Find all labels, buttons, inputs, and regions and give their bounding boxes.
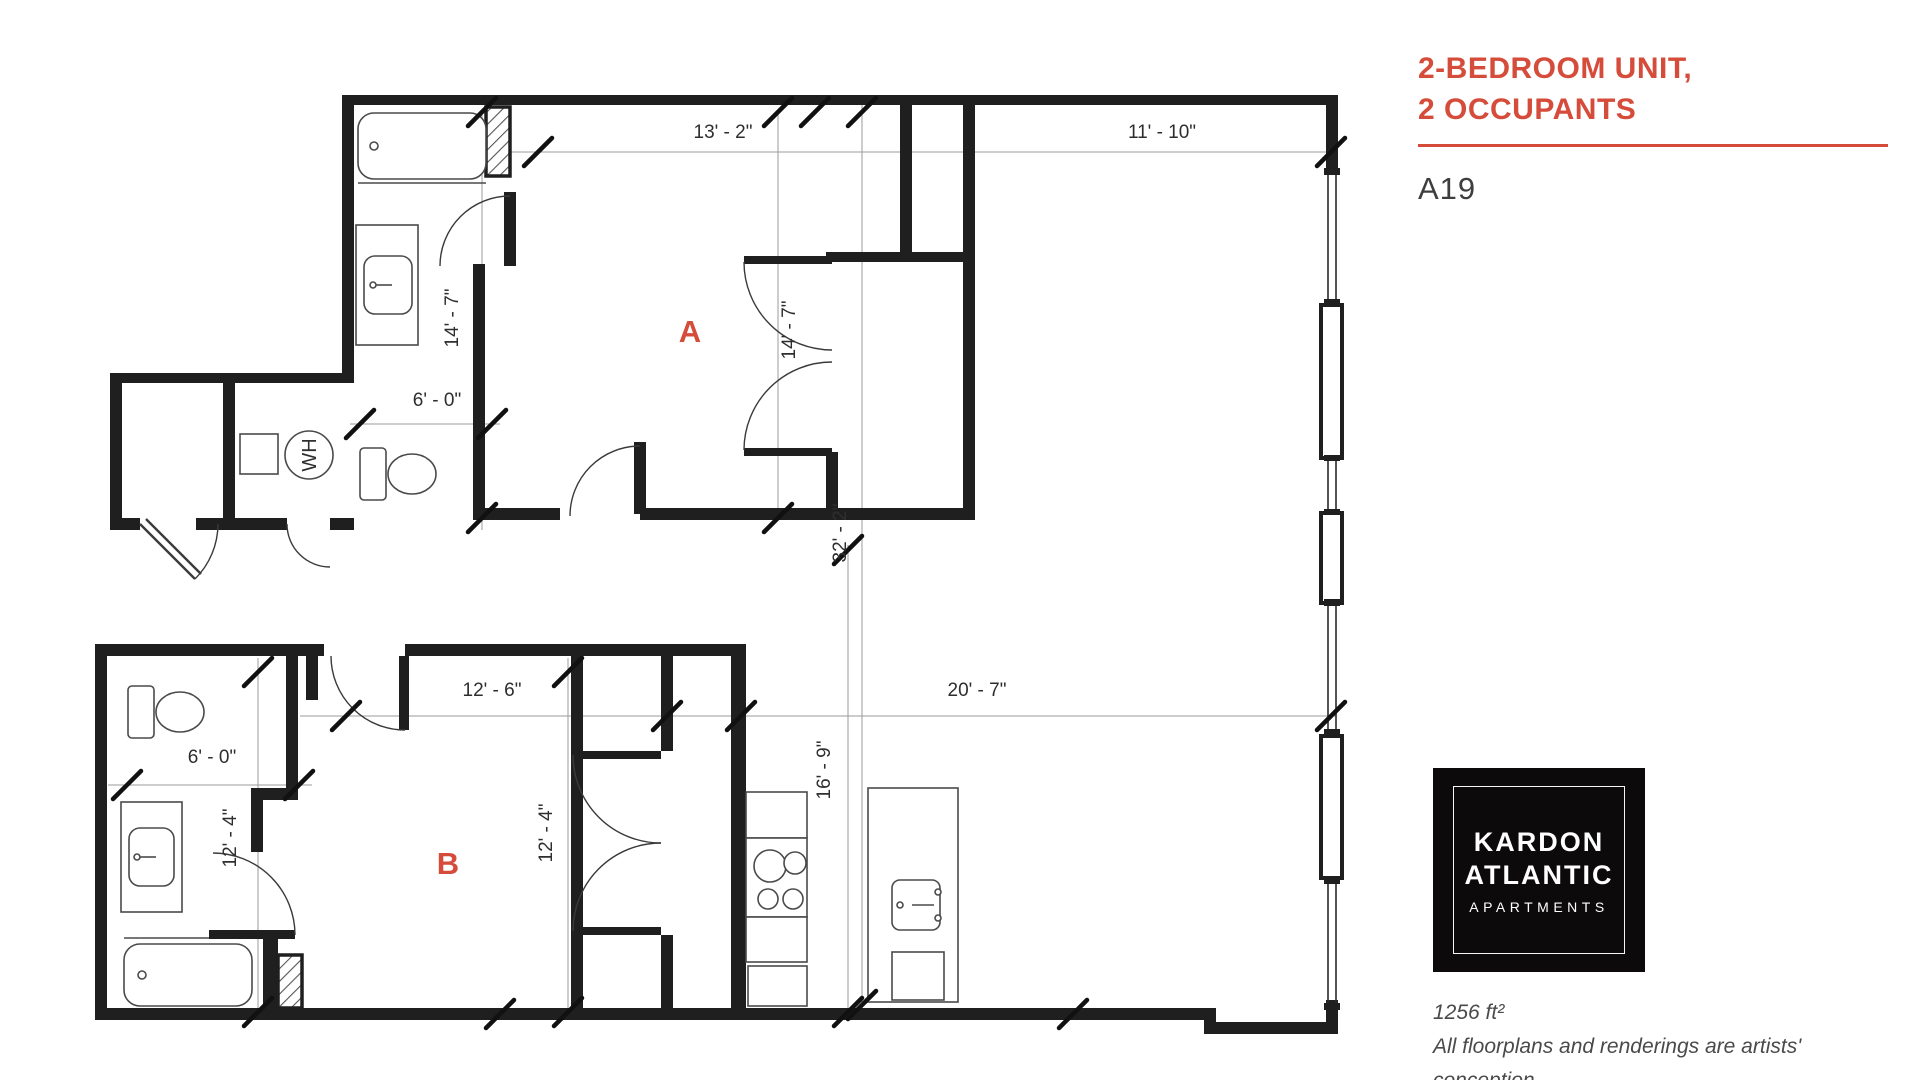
dim-bedroom-b-height: 12' - 4" bbox=[536, 804, 557, 863]
wall-b-block-top-2 bbox=[405, 644, 746, 656]
bath-a-door bbox=[440, 192, 516, 266]
utility-box bbox=[240, 434, 278, 474]
vanity-sink-b bbox=[121, 802, 182, 912]
room-label-a: A bbox=[679, 314, 701, 349]
wall-bath-a-right bbox=[473, 264, 485, 520]
dishwasher bbox=[892, 952, 944, 1000]
bathtub-a bbox=[358, 113, 486, 183]
plumbing-wall-b bbox=[278, 955, 302, 1008]
plumbing-wall-a bbox=[486, 107, 510, 176]
vanity-sink-a bbox=[356, 225, 418, 345]
unit-code: A19 bbox=[1418, 171, 1888, 207]
water-heater-label: WH bbox=[299, 438, 321, 471]
toilet-b bbox=[128, 686, 204, 738]
wall-bottom-jog bbox=[1204, 1008, 1216, 1034]
dim-bedroom-a-height: 14' - 7" bbox=[779, 301, 800, 360]
bathtub-b bbox=[124, 938, 263, 1006]
mullion bbox=[1321, 513, 1342, 603]
walls bbox=[95, 95, 1338, 1034]
doors bbox=[140, 192, 832, 939]
oven bbox=[748, 966, 807, 1006]
wall-entry-bottom-3 bbox=[330, 518, 354, 530]
wall-bath-b-right-upper bbox=[286, 656, 298, 790]
wall-living-west bbox=[963, 105, 975, 520]
tub-faucet bbox=[138, 971, 146, 979]
dim-unit-height-right: 32' - 2" bbox=[830, 504, 851, 563]
wall-closet-b-right-1 bbox=[661, 656, 673, 751]
kitchen-counter bbox=[746, 792, 807, 1006]
wall-room-a-bottom-2 bbox=[640, 508, 975, 520]
wall-entry-bottom-2 bbox=[196, 518, 287, 530]
disclaimer-line1: All floorplans and renderings are artist… bbox=[1433, 1030, 1913, 1080]
wall-closet-a-top bbox=[826, 252, 963, 262]
wh-closet-door bbox=[287, 524, 330, 567]
wall-b-door-jamb bbox=[306, 656, 318, 700]
dimension-lines bbox=[108, 105, 1336, 1015]
dim-bath-a-height: 14' - 7" bbox=[442, 289, 463, 348]
mullion bbox=[1321, 736, 1342, 878]
wall-entry-left bbox=[110, 373, 122, 530]
page-title-line1: 2-BEDROOM UNIT, bbox=[1418, 48, 1888, 89]
unit-area: 1256 ft² bbox=[1433, 996, 1913, 1030]
toilet-a bbox=[360, 448, 436, 500]
dim-bedroom-b-width: 12' - 6" bbox=[463, 680, 522, 701]
closet-b-double-doors bbox=[573, 751, 661, 935]
wall-b-block-top-1 bbox=[95, 644, 324, 656]
wall-bath-b-tub bbox=[263, 930, 278, 1008]
header: 2-BEDROOM UNIT, 2 OCCUPANTS A19 bbox=[1418, 48, 1888, 207]
bedroom-a-door bbox=[570, 442, 646, 516]
dim-bath-b-height: 12' - 4" bbox=[220, 809, 241, 868]
wall-closet-b-left bbox=[571, 656, 583, 1008]
wall-kitchen-west bbox=[731, 656, 746, 1008]
logo-frame bbox=[1453, 786, 1625, 954]
wall-right-top-corner bbox=[1326, 95, 1338, 172]
wall-b-block-left bbox=[95, 644, 107, 1020]
dim-living-width-top: 11' - 10" bbox=[1128, 122, 1196, 143]
dim-living-width: 20' - 7" bbox=[948, 680, 1007, 701]
window-wall bbox=[1321, 168, 1342, 1010]
title-underline bbox=[1418, 144, 1888, 147]
tub-faucet bbox=[370, 142, 378, 150]
dim-bedroom-a-width: 13' - 2" bbox=[694, 122, 753, 143]
kitchen-island bbox=[868, 788, 958, 1002]
footer: 1256 ft² All floorplans and renderings a… bbox=[1433, 996, 1913, 1080]
room-label-b: B bbox=[437, 846, 459, 881]
brand-logo: KARDON ATLANTIC APARTMENTS bbox=[1433, 768, 1645, 972]
wall-closet-divider bbox=[223, 383, 235, 530]
wall-bottom-right bbox=[1216, 1022, 1338, 1034]
dim-kitchen-height: 16' - 9" bbox=[814, 741, 835, 800]
wall-bath-b-right-lower bbox=[251, 800, 263, 852]
wall-entry-top bbox=[110, 373, 354, 383]
wall-bath-a-left bbox=[342, 95, 354, 383]
dimension-ticks bbox=[113, 98, 1345, 1028]
page: 13' - 2" 11' - 10" 14' - 7" 14' - 7" 6' … bbox=[0, 0, 1920, 1080]
wall-closet-a-stub bbox=[900, 105, 912, 258]
wall-entry-bottom-1 bbox=[110, 518, 140, 530]
dim-bath-a-width: 6' - 0" bbox=[413, 390, 461, 411]
dim-bath-b-width: 6' - 0" bbox=[188, 747, 236, 768]
mullion bbox=[1321, 305, 1342, 458]
wall-closet-b-right-2 bbox=[661, 935, 673, 1008]
page-title-line2: 2 OCCUPANTS bbox=[1418, 89, 1888, 130]
